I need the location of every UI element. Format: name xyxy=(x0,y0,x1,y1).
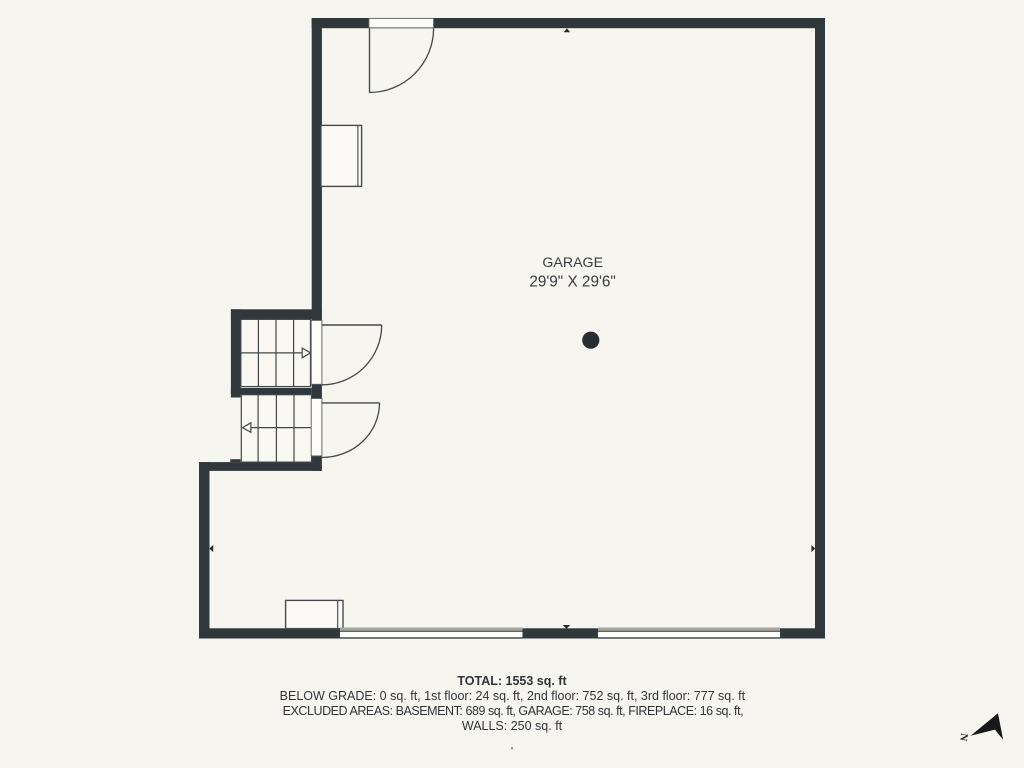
svg-text:WALLS: 250 sq. ft: WALLS: 250 sq. ft xyxy=(462,719,563,733)
svg-text:BELOW GRADE: 0 sq. ft, 1st flo: BELOW GRADE: 0 sq. ft, 1st floor: 24 sq.… xyxy=(280,689,746,703)
svg-text:EXCLUDED AREAS: BASEMENT: 689: EXCLUDED AREAS: BASEMENT: 689 sq. ft, GA… xyxy=(283,704,743,718)
svg-text:29'9" X 29'6": 29'9" X 29'6" xyxy=(529,274,615,291)
svg-text:TOTAL: 1553 sq. ft: TOTAL: 1553 sq. ft xyxy=(457,674,567,688)
svg-text:GARAGE: GARAGE xyxy=(542,255,603,271)
